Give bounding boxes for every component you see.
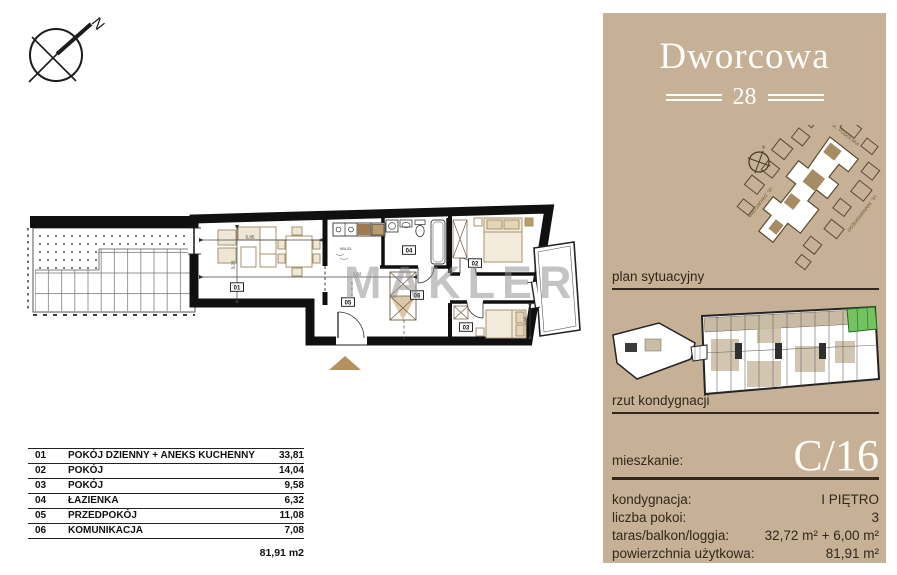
apartment-label: mieszkanie: [612,453,683,474]
room-name: POKÓJ DZIENNY + ANEKS KUCHENNY [68,449,260,463]
site-plan-caption: plan sytuacyjny [612,269,879,290]
brand: Dworcowa 28 [603,35,886,109]
map-compass-icon: N [744,141,777,177]
brand-title: Dworcowa [603,35,886,78]
room-area: 9,58 [260,479,304,493]
detail-row: taras/balkon/loggia: 32,72 m² + 6,00 m² [612,527,879,545]
room-no: 05 [28,509,68,523]
detail-value: 32,72 m² + 6,00 m² [765,527,879,545]
room-label-03: 03 [460,323,473,332]
svg-text:01: 01 [234,285,241,291]
svg-text:03: 03 [463,325,470,331]
watermark: MAKLER [344,257,578,309]
svg-text:N: N [761,144,766,150]
detail-row: kondygnacja: I PIĘTRO [612,491,879,509]
detail-label: liczba pokoi: [612,509,686,527]
dim-label: 5,85 [246,234,255,239]
room-name: ŁAZIENKA [68,494,260,508]
detail-label: powierzchnia użytkowa: [612,545,755,563]
detail-label: kondygnacja: [612,491,692,509]
detail-label: taras/balkon/loggia: [612,527,729,545]
room-name: PRZEDPOKÓJ [68,509,260,523]
floor-overview-wing [613,323,707,379]
kitchen-counter [333,223,385,236]
room-label-01: 01 [231,283,244,292]
room-no: 04 [28,494,68,508]
table-row: 01 POKÓJ DZIENNY + ANEKS KUCHENNY 33,81 [28,448,304,463]
room-area: 33,81 [260,449,304,463]
detail-row: powierzchnia użytkowa: 81,91 m² [612,545,879,563]
floor-overview-caption: rzut kondygnacji [612,393,879,414]
detail-value: I PIĘTRO [821,491,879,509]
map-blocks: UL. PODOLSKA UL. WARMIŃSKIEGO UL. DWORCO… [726,125,882,271]
brand-double-line [768,94,824,101]
svg-text:KBL/ZL: KBL/ZL [340,247,352,251]
brand-number: 28 [733,85,757,109]
total-area: 81,91 m2 [28,547,304,559]
terrace [28,216,196,315]
room-name: POKÓJ [68,479,260,493]
room-label-04: 04 [403,246,416,255]
page: N [0,0,897,575]
room-no: 01 [28,449,68,463]
rooms-table: 01 POKÓJ DZIENNY + ANEKS KUCHENNY 33,81 … [28,448,304,559]
compass-north-label: N [88,14,108,33]
apartment-id-row: mieszkanie: C/16 [612,437,879,480]
terrace-door [188,228,201,254]
room-name: KOMUNIKACJA [68,524,260,538]
detail-value: 81,91 m² [826,545,879,563]
floor-overview [607,301,882,401]
dim-label: 2,95 [524,316,529,325]
apartment-id: C/16 [793,437,879,474]
brand-double-line [666,94,722,101]
sidebar: Dworcowa 28 N [603,13,886,563]
table-row: 05 PRZEDPOKÓJ 11,08 [28,508,304,523]
detail-row: liczba pokoi: 3 [612,509,879,527]
north-compass-icon: N [14,6,109,96]
room-area: 11,08 [260,509,304,523]
site-plan-map: N [607,125,882,271]
dim-label: 3,20 [231,260,236,269]
table-row: 06 KOMUNIKACJA 7,08 [28,523,304,538]
room-no: 03 [28,479,68,493]
room-area: 7,08 [260,524,304,538]
detail-value: 3 [871,509,879,527]
room-area: 6,32 [260,494,304,508]
entrance-arrow [329,356,361,370]
highlighted-unit [847,307,877,332]
room-no: 06 [28,524,68,538]
table-row: 02 POKÓJ 14,04 [28,463,304,478]
table-row: 03 POKÓJ 9,58 [28,478,304,493]
svg-text:04: 04 [406,248,413,254]
apartment-details: kondygnacja: I PIĘTRO liczba pokoi: 3 ta… [612,491,879,563]
room-area: 14,04 [260,464,304,478]
room-name: POKÓJ [68,464,260,478]
room-no: 02 [28,464,68,478]
table-row: 04 ŁAZIENKA 6,32 [28,493,304,508]
